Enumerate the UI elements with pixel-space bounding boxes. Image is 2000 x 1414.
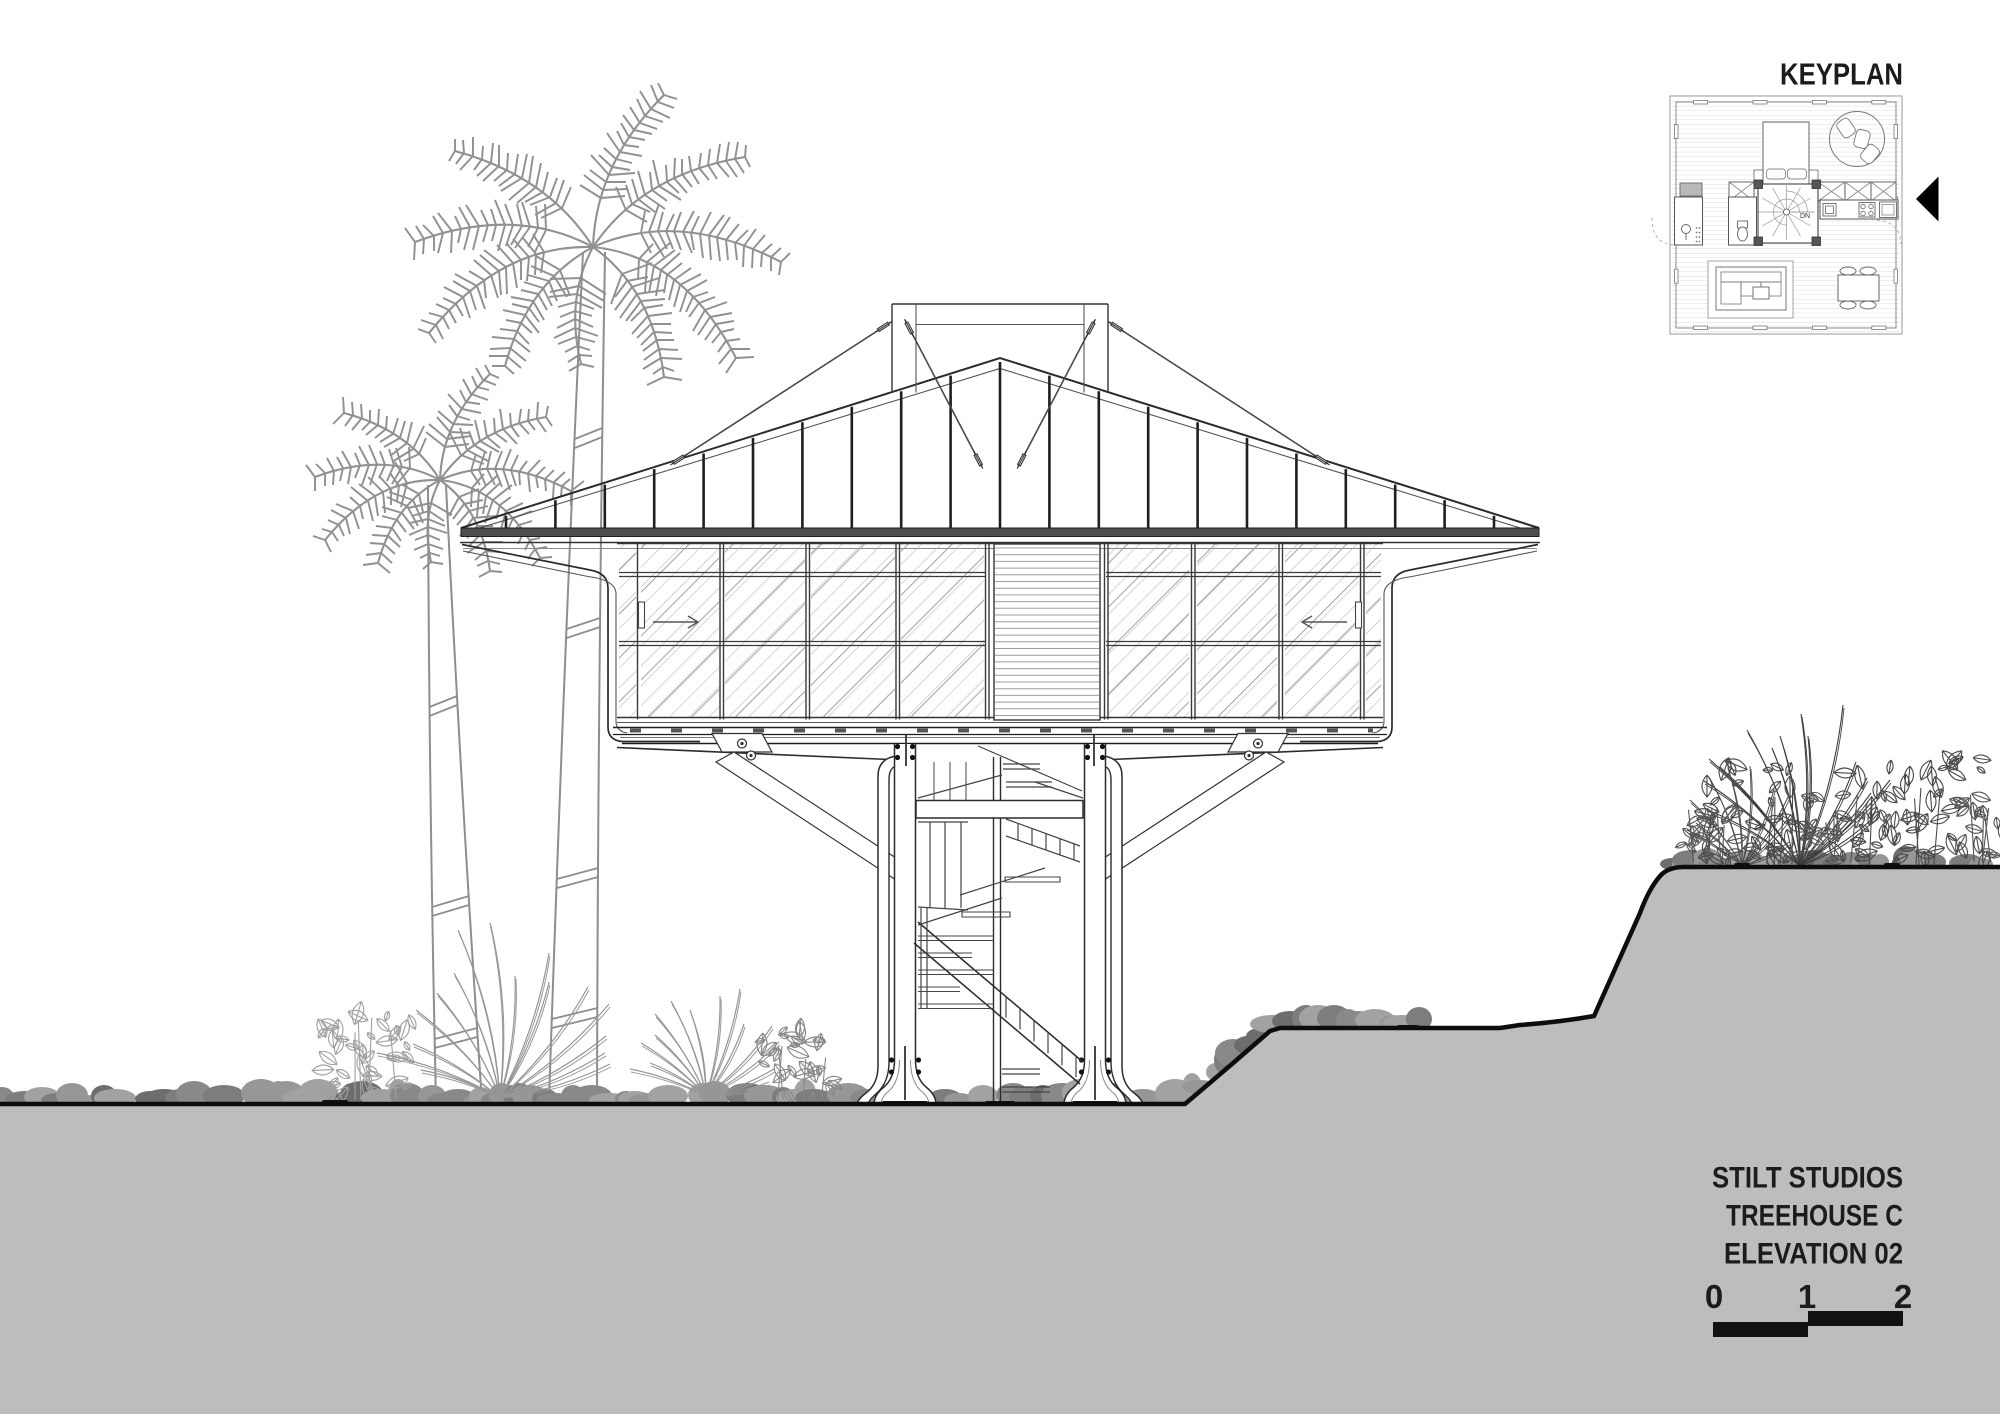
svg-text:TREEHOUSE C: TREEHOUSE C	[1726, 1200, 1903, 1233]
svg-text:0: 0	[1705, 1278, 1723, 1315]
svg-text:2: 2	[1894, 1278, 1912, 1315]
svg-text:ELEVATION 02: ELEVATION 02	[1724, 1238, 1903, 1271]
svg-text:STILT STUDIOS: STILT STUDIOS	[1712, 1162, 1903, 1195]
svg-text:KEYPLAN: KEYPLAN	[1780, 57, 1903, 92]
svg-text:DN: DN	[1800, 213, 1810, 220]
svg-text:1: 1	[1798, 1278, 1816, 1315]
